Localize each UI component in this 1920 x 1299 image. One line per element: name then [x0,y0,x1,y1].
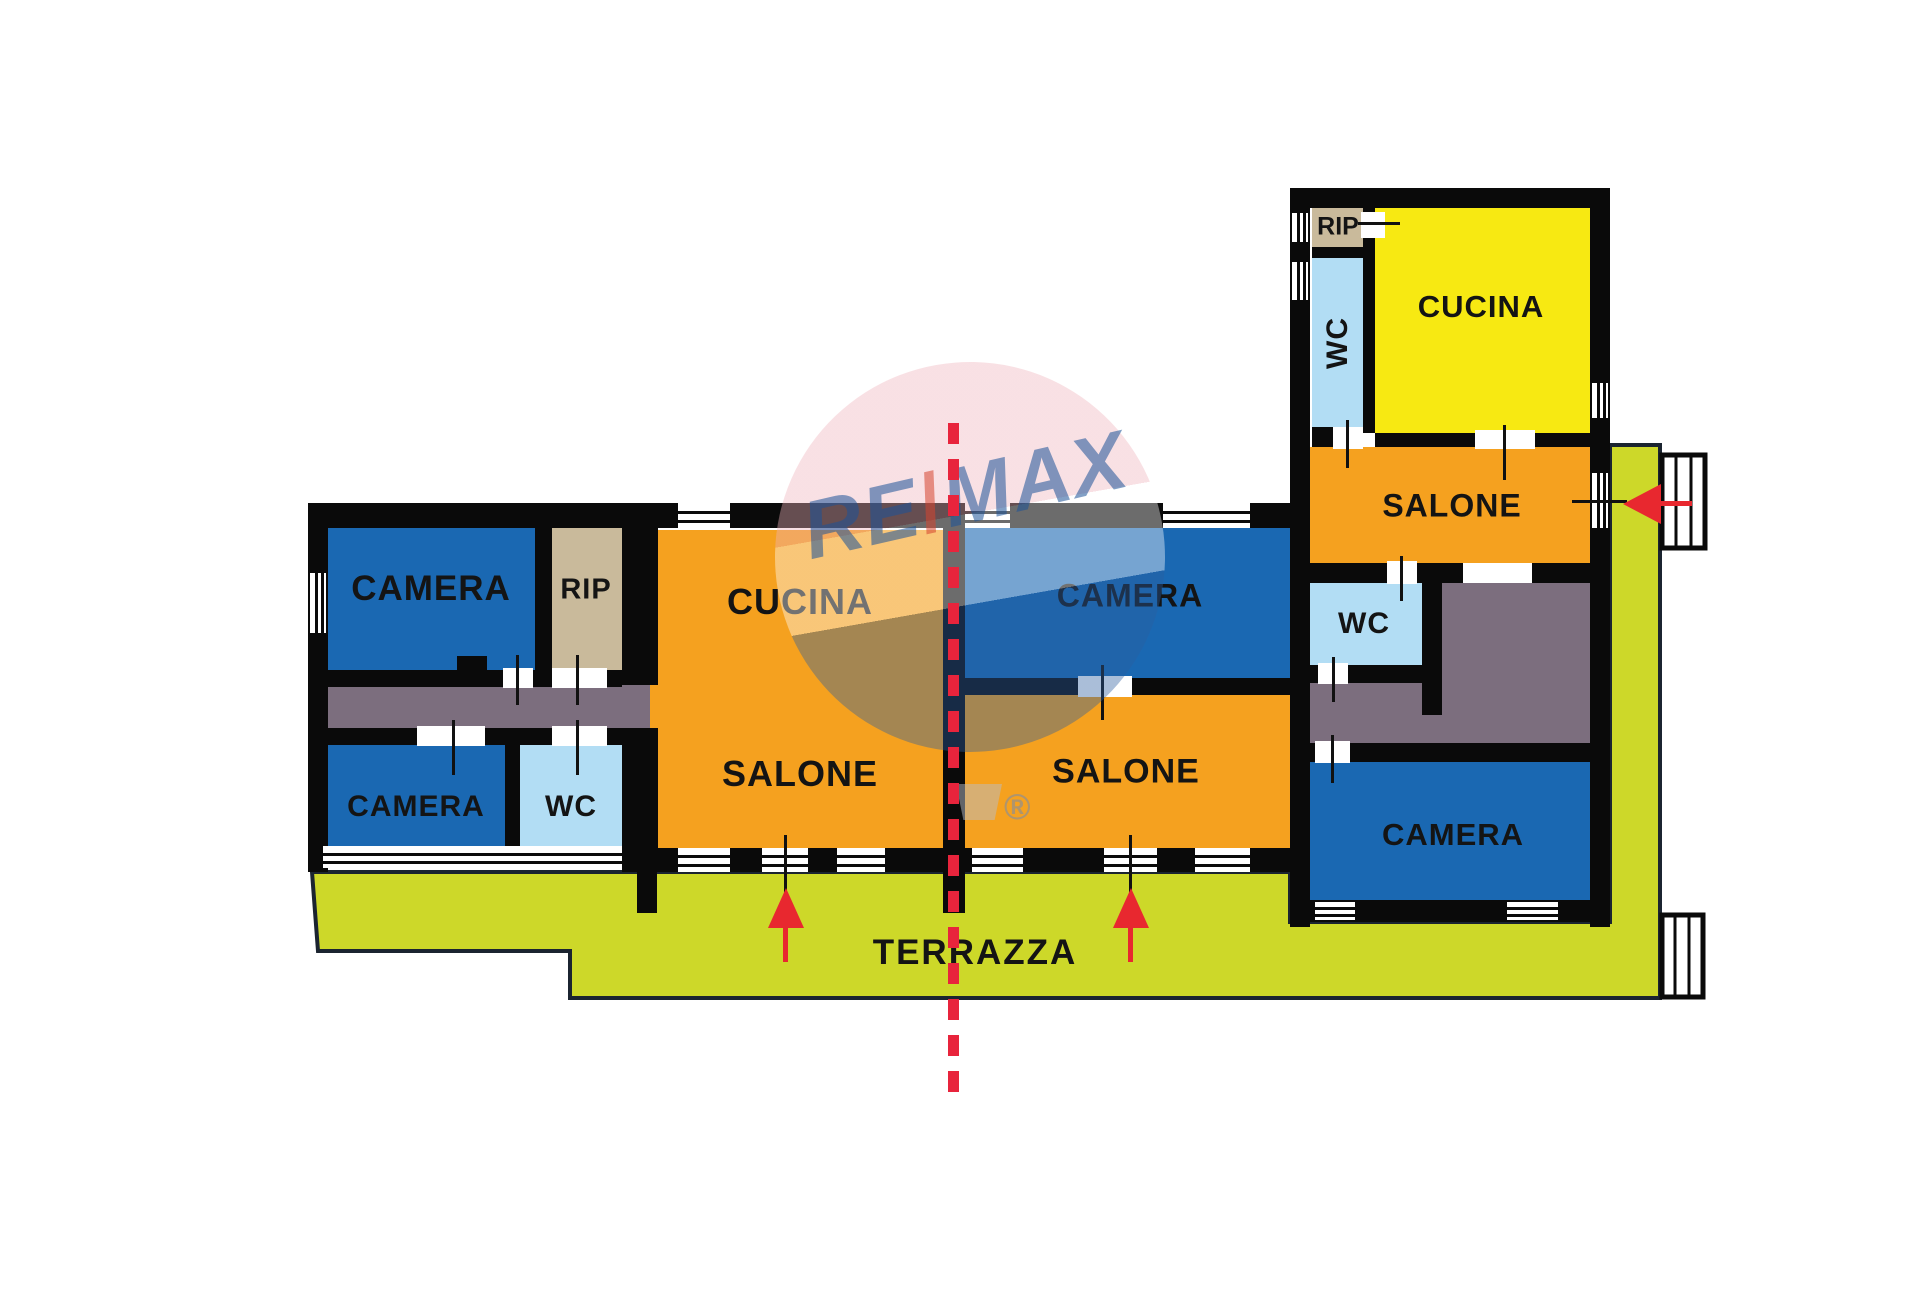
door-tick [1400,556,1403,601]
wall-stub-terrace-left [637,870,657,913]
unit-split-dashed-line [948,423,959,1105]
wall-camera-rip-divider [535,525,552,672]
entrance-arrow-right-unit-stem [1658,501,1692,506]
label-wc-left: WC [545,790,597,824]
door-wc-left [552,726,607,746]
label-camera-top-left: CAMERA [351,569,511,609]
wall-vert-622-upper [622,503,658,685]
wall-below-cucina-a [1375,433,1475,447]
door-rip-to-cucina-right [1361,212,1385,238]
wall-below-rip-left [607,670,622,687]
door-tick [1572,500,1627,503]
window-salone-left-a [678,848,730,872]
window-salone-center-a [972,848,1023,872]
wall-left-main [308,503,328,872]
balcony-railing-bottom [1662,915,1703,997]
wall-wc-mid-right-side [1422,583,1442,715]
door-tick [1331,735,1334,783]
wall-below-cucina-b [1535,433,1590,447]
label-terrazza: TERRAZZA [873,933,1078,973]
wall-below-corridor-a [328,728,417,745]
wall-salone-right-bottom-b [1417,563,1463,583]
label-wc-top-right: WC [1321,317,1355,369]
entrance-arrow-left-unit-stem [783,926,788,962]
wall-below-camera-top-a [328,670,503,687]
window-cucina-right [1592,383,1608,418]
wall-below-wc-mid-b [1348,665,1422,683]
window-top-left-unit [678,503,730,528]
door-camera-bottom-left [417,726,485,746]
label-wc-mid-right: WC [1338,607,1390,641]
wall-below-wc-mid-a [1310,665,1318,683]
wall-below-camera-center-b [1132,678,1310,695]
wall-right-block-b [1590,188,1610,927]
wall-below-corridor-b [485,728,552,745]
entrance-arrow-right-unit-icon [1623,484,1661,524]
wall-below-rip-right [1312,247,1363,258]
door-tick [576,655,579,705]
label-salone-right: SALONE [1382,488,1521,525]
floor-plan: CAMERA RIP CAMERA WC CUCINA SALONE CAMER… [0,0,1920,1299]
window-camera-br-b [1507,902,1558,920]
wall-below-corridor-c [607,728,658,745]
door-tick [1129,835,1132,895]
label-rip-left: RIP [560,574,611,607]
window-top-center-b [1163,503,1250,528]
door-tick [1503,425,1506,480]
label-cucina-right: CUCINA [1418,289,1545,325]
room-corridor-right-a [1442,583,1590,743]
entrance-arrow-center-unit-stem [1128,926,1133,962]
wall-below-camera-top-b [533,670,552,687]
registered-trademark-symbol: ® [1004,786,1031,828]
label-rip-right: RIP [1317,213,1359,242]
door-tick [1358,222,1400,225]
window-band-left-block [323,846,622,868]
window-camera-br-a [1315,902,1355,920]
wall-below-wc-top [1312,427,1333,447]
door-tick [1346,420,1349,468]
wall-salone-right-bottom-a [1310,563,1387,583]
wall-camera2-wc-divider [505,745,520,848]
window-rip-right [1292,213,1308,242]
window-left-camera-top [310,573,326,633]
window-salone-center-b [1195,848,1250,872]
window-salone-left-b [837,848,885,872]
wall-vert-622-lower [622,730,658,848]
entrance-arrow-center-unit-icon [1113,888,1149,928]
room-corridor-left [328,685,650,730]
balloon-basket-icon [956,784,1002,820]
wall-wc-cucina-divider [1363,208,1375,433]
door-rip-left [552,668,607,688]
label-salone-center: SALONE [1052,753,1200,792]
wall-salone-right-bottom-c [1532,563,1590,583]
door-tick [784,835,787,895]
label-camera-bottom-left: CAMERA [347,790,485,824]
window-wc-top-right [1292,262,1308,300]
door-tick [1332,657,1335,702]
door-tick [452,720,455,775]
wall-below-corridor-right-b [1350,743,1590,762]
door-tick [516,655,519,705]
wall-top-block-b [1290,188,1610,208]
label-salone-left-unit: SALONE [722,753,878,795]
label-camera-bottom-right: CAMERA [1382,817,1524,853]
entrance-arrow-left-unit-icon [768,888,804,928]
wall-bump-camera [457,656,487,672]
door-tick [576,720,579,775]
